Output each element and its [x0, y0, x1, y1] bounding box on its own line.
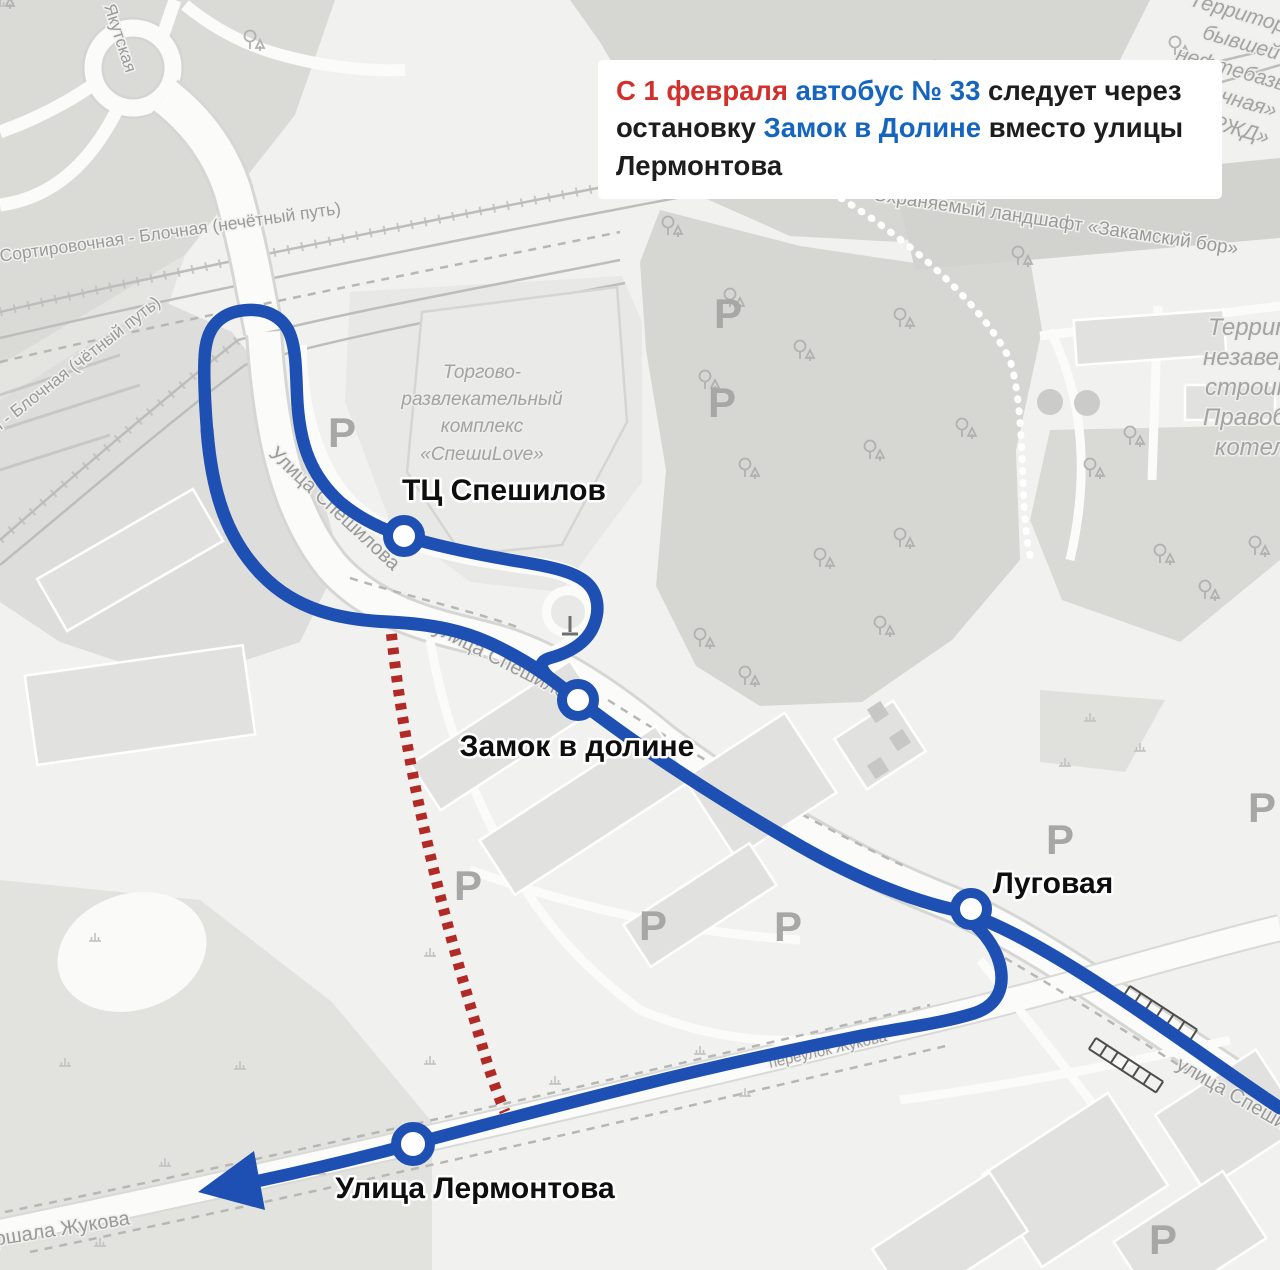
- svg-text:котельной: котельной: [1215, 434, 1280, 461]
- former-route-dashed: [390, 620, 505, 1112]
- announcement-date: С 1 февраля: [616, 75, 796, 106]
- svg-text:комплекс: комплекс: [441, 416, 524, 437]
- stop-label-lugovaya: Луговая: [993, 867, 1113, 900]
- svg-text:незавершенного: незавершенного: [1203, 344, 1280, 371]
- parking-icon: Р: [1248, 784, 1276, 831]
- parking-icon: Р: [714, 290, 742, 337]
- announcement-line2: остановку Замок в Долине вместо улицы: [616, 109, 1204, 146]
- stop-label-zamok-v-doline: Замок в долине: [460, 730, 695, 763]
- svg-text:Территория: Территория: [1208, 314, 1280, 341]
- svg-text:«СпешиLove»: «СпешиLove»: [420, 444, 543, 465]
- svg-text:развлекательный: развлекательный: [400, 389, 563, 410]
- announcement-bus-number: автобус № 33: [796, 75, 981, 106]
- stop-marker-tc-speshilov: [388, 520, 420, 552]
- announcement-box: С 1 февраля автобус № 33 следует через о…: [598, 60, 1222, 199]
- map-screenshot: Пермь-Сортировочная - Блочная (нечётный …: [0, 0, 1280, 1270]
- stop-label-ulitsa-lermontova: Улица Лермонтова: [335, 1172, 615, 1205]
- territory-right-label: Территория незавершенного строительства …: [1203, 314, 1280, 461]
- svg-text:Правобережной: Правобережной: [1203, 404, 1280, 431]
- stop-label-tc-speshilov: ТЦ Спешилов: [402, 474, 606, 507]
- svg-text:Торгово-: Торгово-: [443, 362, 521, 383]
- parking-icon: Р: [1046, 816, 1074, 863]
- parking-icon: Р: [774, 903, 802, 950]
- announcement-line1: С 1 февраля автобус № 33 следует через: [616, 72, 1204, 109]
- stop-marker-zamok-v-doline: [562, 684, 594, 716]
- announcement-line3: Лермонтова: [616, 147, 1204, 184]
- stop-marker-lugovaya: [955, 893, 987, 925]
- stop-marker-ulitsa-lermontova: [396, 1127, 430, 1161]
- parking-icon: Р: [708, 379, 736, 426]
- parking-icon: Р: [328, 409, 356, 456]
- parking-icon: Р: [1149, 1216, 1177, 1263]
- announcement-stop-name: Замок в Долине: [764, 112, 982, 143]
- svg-text:строительства: строительства: [1205, 374, 1280, 401]
- parking-icon: Р: [454, 862, 482, 909]
- parking-icon: Р: [639, 902, 667, 949]
